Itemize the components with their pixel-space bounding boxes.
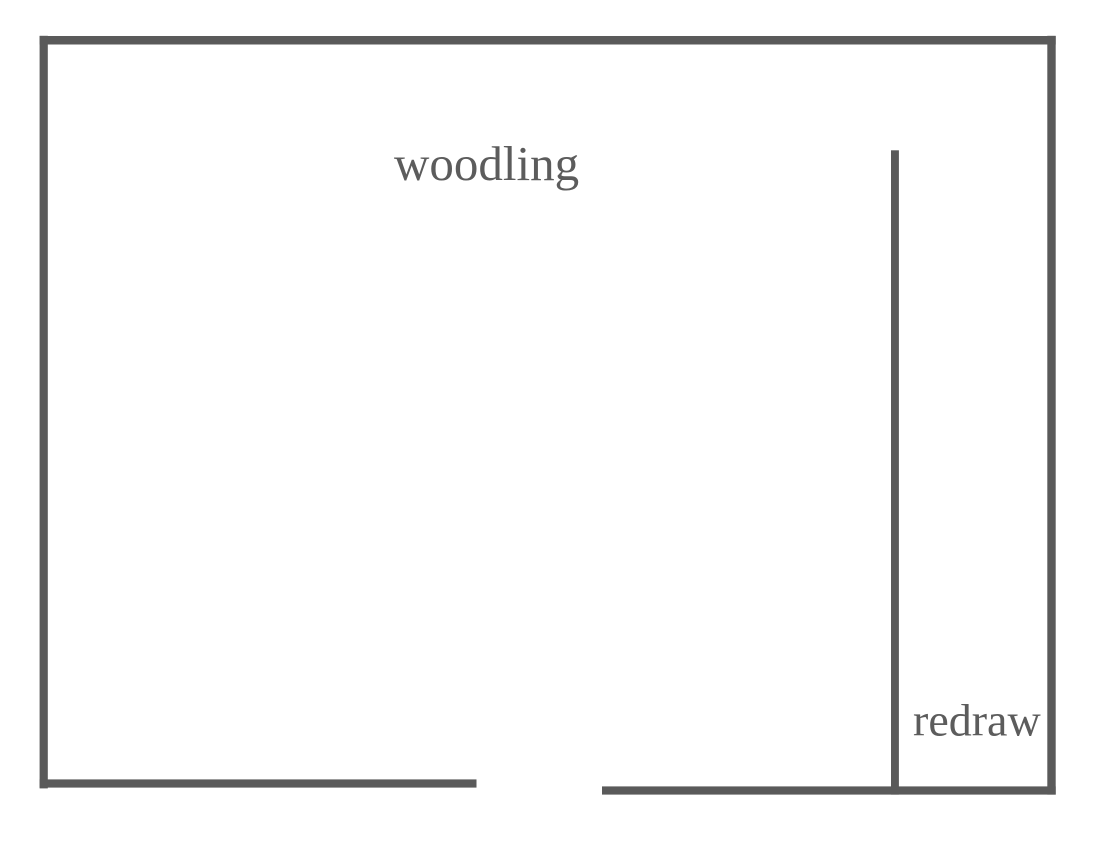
svg-text:redraw: redraw	[913, 695, 1041, 746]
svg-text:woodling: woodling	[394, 136, 579, 191]
